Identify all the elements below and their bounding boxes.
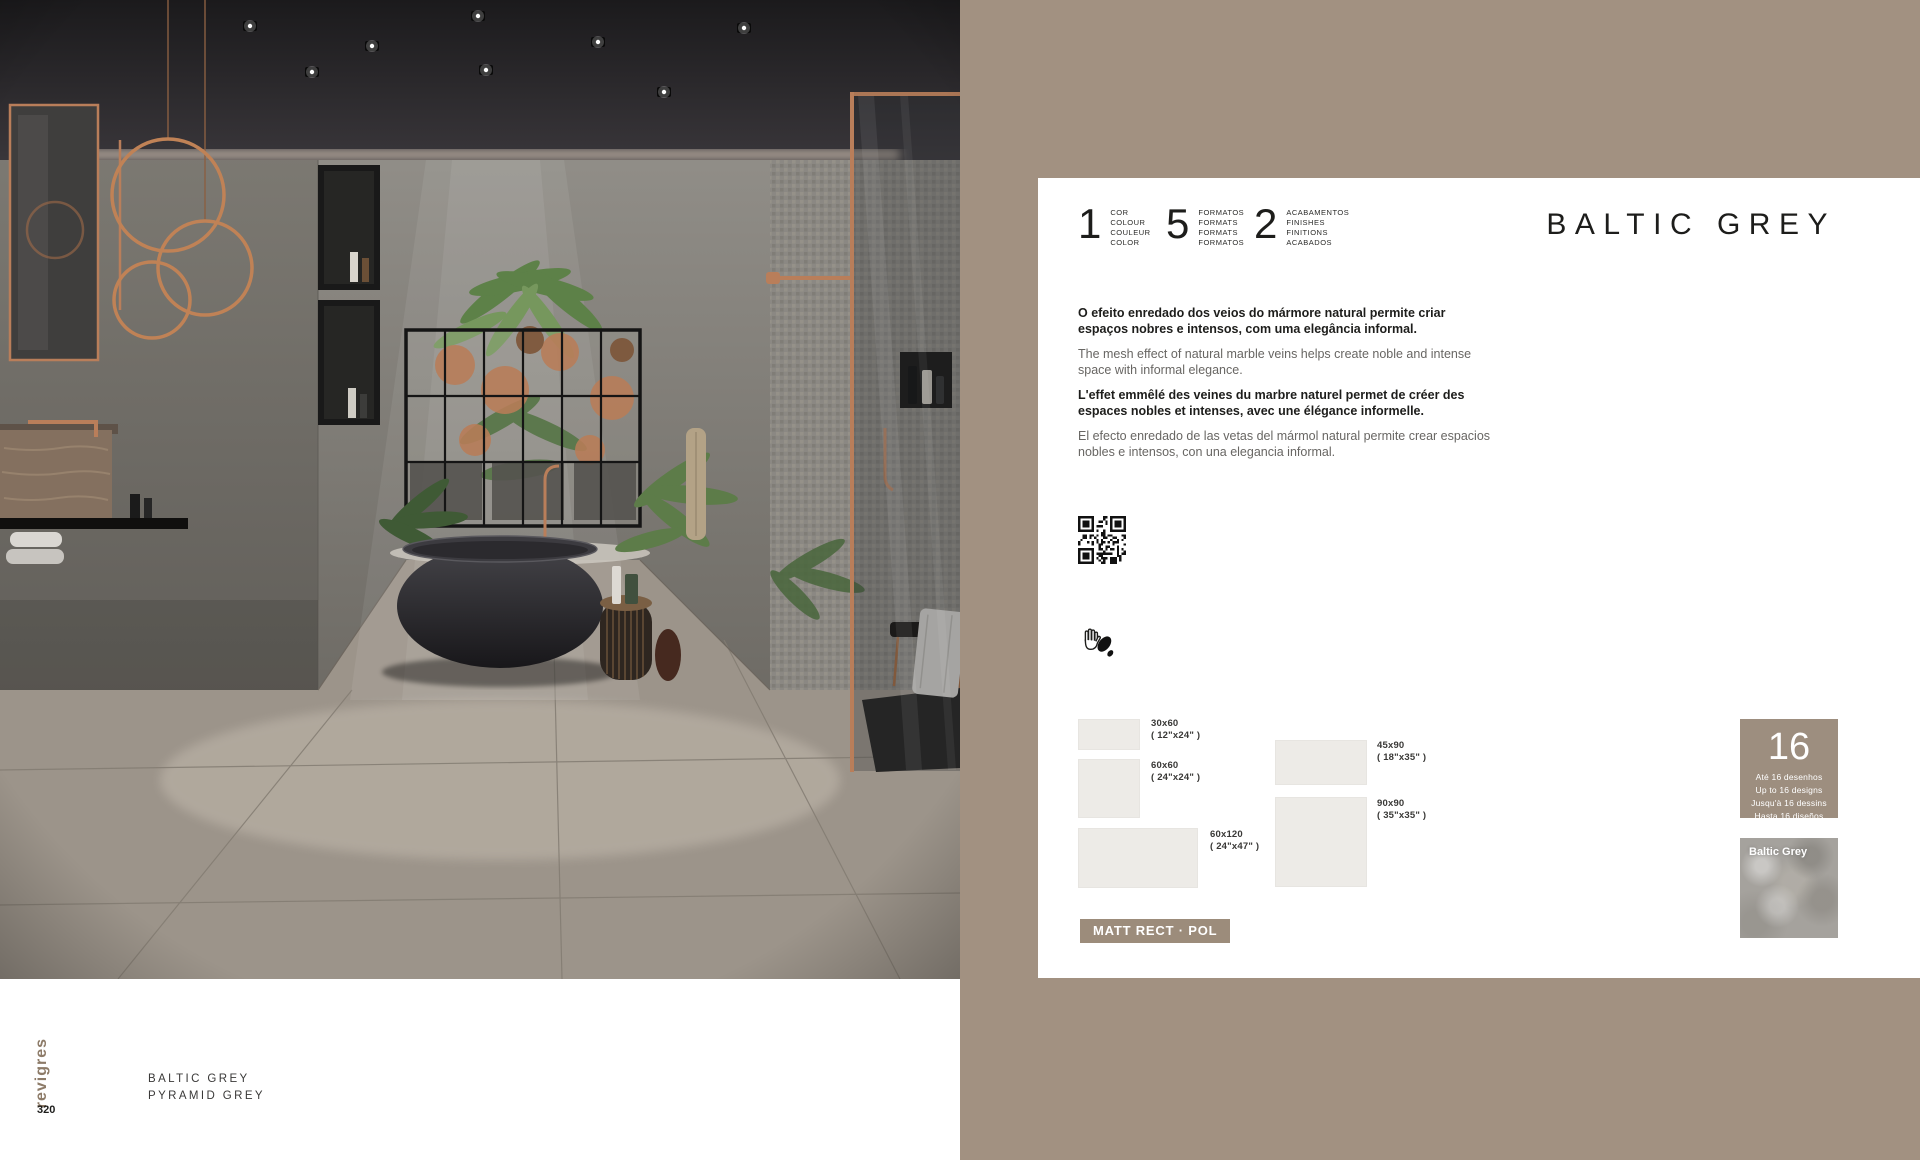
spec-formats-count: 5	[1166, 204, 1189, 247]
qr-code	[1078, 516, 1126, 564]
description-es: El efecto enredado de las vetas del márm…	[1078, 429, 1498, 460]
product-card: 1 COR COLOUR COULEUR COLOR 5 FORMATOS FO…	[1038, 178, 1920, 978]
baltic-grey-swatch: Baltic Grey	[1740, 838, 1838, 938]
bathroom-scene-illustration	[0, 0, 960, 979]
format-label-30x60: 30x60 ( 12"x24" )	[1151, 718, 1200, 742]
description-block: O efeito enredado dos veios do mármore n…	[1078, 306, 1498, 470]
spec-finishes: 2 ACABAMENTOS FINISHES FINITIONS ACABADO…	[1254, 204, 1349, 247]
designs-count-box: 16 Até 16 desenhos Up to 16 designs Jusq…	[1740, 719, 1838, 818]
format-swatch-60x60	[1078, 759, 1140, 818]
format-label-90x90: 90x90 ( 35"x35" )	[1377, 798, 1426, 822]
format-label-60x60: 60x60 ( 24"x24" )	[1151, 760, 1200, 784]
format-label-45x90: 45x90 ( 18"x35" )	[1377, 740, 1426, 764]
footer-product-pyramid-grey: PYRAMID GREY	[148, 1088, 265, 1105]
footer-product-names: BALTIC GREY PYRAMID GREY	[148, 1071, 265, 1105]
format-swatch-30x60	[1078, 719, 1140, 750]
designs-lines: Até 16 desenhos Up to 16 designs Jusqu'à…	[1740, 771, 1838, 823]
page-number: 320	[37, 1104, 55, 1116]
spec-finishes-labels: ACABAMENTOS FINISHES FINITIONS ACABADOS	[1286, 204, 1349, 247]
brand-logo-vertical: revigres	[33, 1038, 51, 1108]
spec-formats: 5 FORMATOS FORMATS FORMATS FORMATOS	[1166, 204, 1254, 247]
bathroom-photo	[0, 0, 960, 979]
format-swatch-45x90	[1275, 740, 1367, 785]
spec-colours: 1 COR COLOUR COULEUR COLOR	[1078, 204, 1166, 247]
format-swatch-90x90	[1275, 797, 1367, 887]
format-swatch-60x120	[1078, 828, 1198, 888]
wall-floor-application-icon	[1078, 626, 1116, 660]
swatch-label: Baltic Grey	[1749, 846, 1807, 858]
finish-badge: MATT RECT · POL	[1080, 919, 1230, 943]
spec-colours-labels: COR COLOUR COULEUR COLOR	[1110, 204, 1150, 247]
spec-finishes-count: 2	[1254, 204, 1277, 247]
spec-colours-count: 1	[1078, 204, 1101, 247]
description-en: The mesh effect of natural marble veins …	[1078, 347, 1498, 378]
spec-summary: 1 COR COLOUR COULEUR COLOR 5 FORMATOS FO…	[1078, 204, 1349, 247]
catalog-spread: 1 COR COLOUR COULEUR COLOR 5 FORMATOS FO…	[0, 0, 1920, 1160]
footer-product-baltic-grey: BALTIC GREY	[148, 1071, 265, 1088]
designs-number: 16	[1740, 728, 1838, 766]
spec-formats-labels: FORMATOS FORMATS FORMATS FORMATOS	[1198, 204, 1244, 247]
product-title: BALTIC GREY	[1546, 208, 1836, 242]
description-fr: L'effet emmêlé des veines du marbre natu…	[1078, 388, 1498, 419]
format-label-60x120: 60x120 ( 24"x47" )	[1210, 829, 1259, 853]
description-pt: O efeito enredado dos veios do mármore n…	[1078, 306, 1498, 337]
